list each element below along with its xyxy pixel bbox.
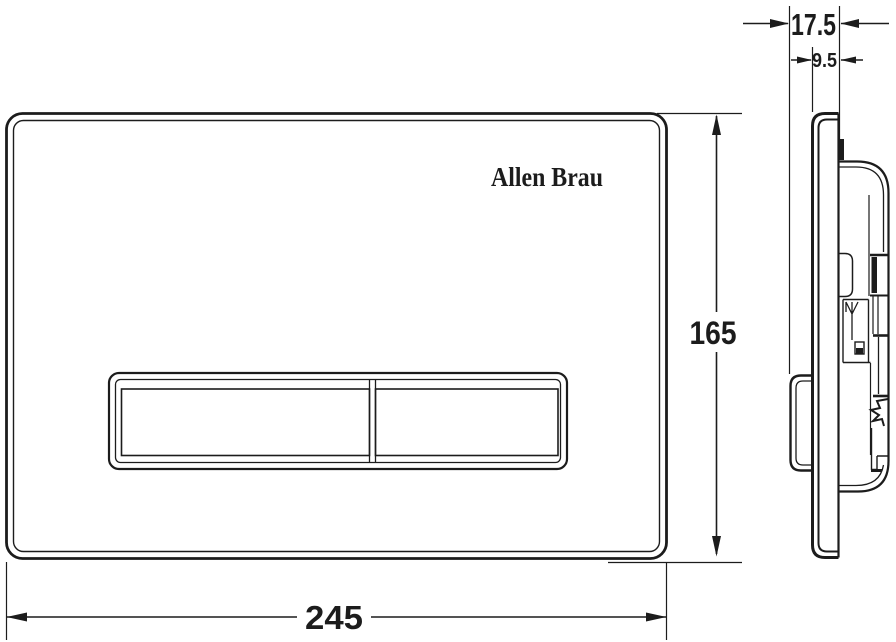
side-plate-outline <box>813 114 839 558</box>
width-arrowhead-right <box>646 613 667 622</box>
flush-plate-drawing: Allen Brau <box>0 0 896 642</box>
latch-tab <box>839 254 853 297</box>
plate-depth-arrowhead-left <box>797 57 812 64</box>
height-arrowhead-bottom <box>712 536 721 557</box>
dimension-height: 165 <box>608 114 742 563</box>
mechanism-lever <box>846 302 858 340</box>
dimension-width: 245 <box>7 562 667 640</box>
button-panel-inner-frame <box>116 380 561 463</box>
dimension-plate-depth: 9.5 <box>791 47 863 112</box>
button-panel-outer-frame <box>109 373 567 469</box>
button-panel <box>109 373 567 469</box>
total-depth-arrowhead-right <box>841 19 860 28</box>
height-arrowhead-top <box>712 115 721 136</box>
front-view: Allen Brau <box>7 114 667 559</box>
housing-lower-step <box>871 428 889 470</box>
side-button-bump-outline <box>791 376 814 471</box>
brand-logo: Allen Brau <box>491 162 603 192</box>
total-depth-dim-label: 17.5 <box>791 7 836 42</box>
housing-outline <box>839 162 889 492</box>
side-button-bump-inner-line <box>796 381 813 465</box>
total-depth-arrowhead-left <box>770 19 789 28</box>
plate-depth-dim-label: 9.5 <box>812 50 837 72</box>
left-flush-button <box>122 389 370 456</box>
spring-clip-detail <box>871 399 888 426</box>
right-flush-button <box>376 389 559 456</box>
housing-inner-top-line <box>839 167 884 252</box>
technical-drawing-canvas: Allen Brau <box>0 0 896 642</box>
height-dim-label: 165 <box>690 315 737 351</box>
housing-dark-bar <box>872 257 878 293</box>
side-view <box>791 114 889 558</box>
side-plate-front-face-line <box>819 120 839 552</box>
plate-depth-arrowhead-right <box>841 57 857 64</box>
width-arrowhead-left <box>7 613 28 622</box>
mechanism-box-fill <box>856 348 863 354</box>
width-dim-label: 245 <box>305 599 363 636</box>
